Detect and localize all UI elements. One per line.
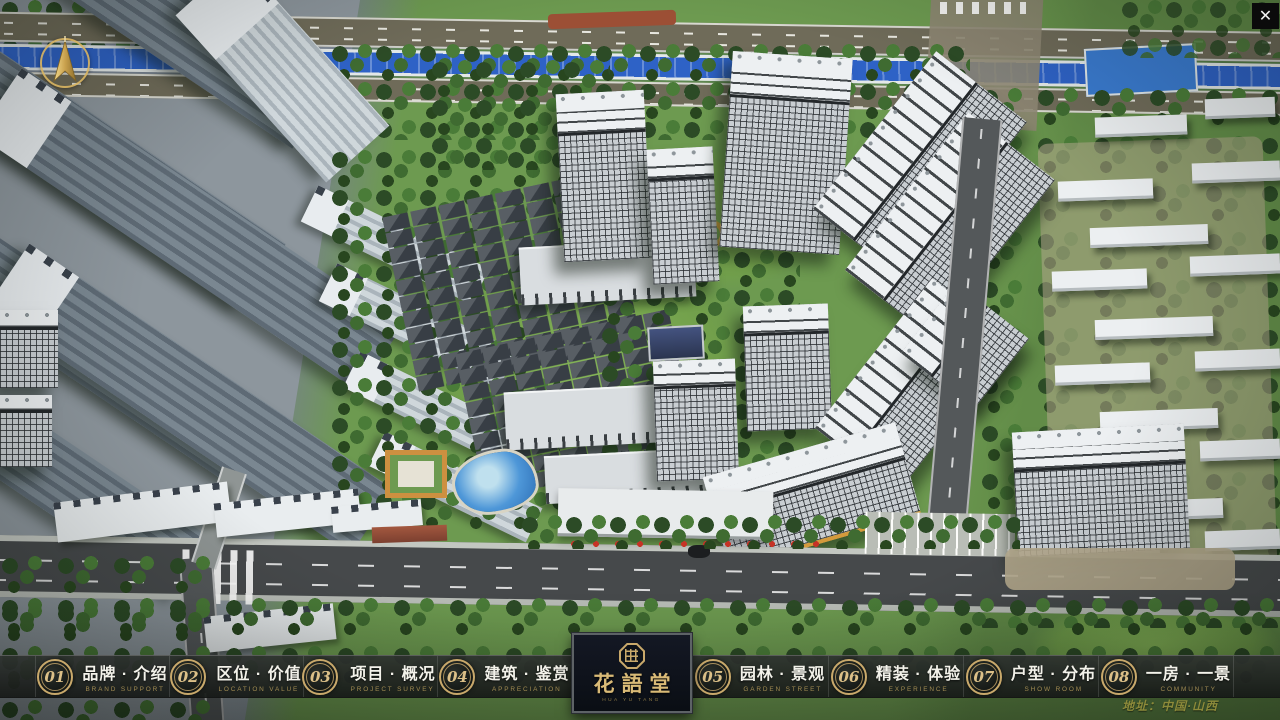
nav-number-badge: 05 (695, 659, 731, 695)
nav-number-badge: 06 (831, 659, 867, 695)
nav-label-zh: 园林 · 景观 (740, 660, 825, 684)
nav-number-badge: 04 (439, 659, 475, 695)
tower-building (647, 146, 720, 284)
tower-building (556, 90, 653, 262)
row-house (1095, 316, 1214, 340)
row-house (1200, 439, 1280, 462)
nav-label-en: GARDEN STREET (743, 686, 822, 692)
aerial-map[interactable] (0, 0, 1280, 720)
nav-item-garden[interactable]: 05 园林 · 景观 GARDEN STREET (692, 656, 829, 697)
commercial-building (1012, 424, 1190, 558)
row-house (1192, 160, 1280, 183)
tree-cluster (330, 44, 970, 140)
compass-icon (36, 34, 94, 92)
tower-building (743, 304, 832, 432)
nav-label-zh: 区位 · 价值 (216, 660, 301, 684)
logo[interactable]: 花語堂 HUA YU TANG (572, 633, 692, 713)
row-house (1205, 97, 1276, 119)
nav-item-architecture[interactable]: 04 建筑 · 鉴赏 APPRECIATION (438, 656, 572, 697)
building (504, 384, 677, 451)
bottom-navigation-bar: 01 品牌 · 介绍 BRAND SUPPORT 02 区位 · 价值 LOCA… (0, 655, 1280, 698)
crosswalk (940, 2, 1026, 14)
row-house (1090, 224, 1209, 248)
tower-building (653, 359, 739, 482)
nav-item-interior[interactable]: 06 精装 · 体验 EXPERIENCE (829, 656, 964, 697)
navbar-spacer (1234, 656, 1280, 697)
nav-label-en: LOCATION VALUE (219, 686, 300, 692)
nav-label-en: APPRECIATION (492, 686, 562, 692)
nav-label-en: COMMUNITY (1160, 686, 1216, 692)
nav-number-badge: 02 (170, 659, 206, 695)
navbar-spacer (0, 656, 36, 697)
building (0, 395, 52, 467)
sales-presentation-screen: ✕ 01 品牌 · 介绍 BRAND SUPPORT 02 区位 · 价值 LO… (0, 0, 1280, 720)
nav-label-zh: 精装 · 体验 (876, 660, 961, 684)
nav-item-room-view[interactable]: 08 一房 · 一景 COMMUNITY (1099, 656, 1234, 697)
nav-number-badge: 07 (966, 659, 1002, 695)
row-house (1058, 178, 1154, 201)
forecourt (1005, 548, 1235, 590)
nav-item-project[interactable]: 03 项目 · 概况 PROJECT SURVEY (304, 656, 438, 697)
nav-label-zh: 户型 · 分布 (1011, 660, 1096, 684)
nav-label-zh: 项目 · 概况 (350, 660, 435, 684)
clubhouse (647, 325, 705, 362)
row-house (1055, 362, 1151, 385)
logo-subtitle: HUA YU TANG (603, 698, 661, 703)
row-house (1195, 349, 1280, 372)
row-house (1095, 114, 1188, 137)
nav-label-en: EXPERIENCE (889, 686, 949, 692)
nav-label-en: SHOW ROOM (1024, 686, 1082, 692)
nav-number-badge: 01 (37, 659, 73, 695)
entrance-wall (372, 525, 448, 544)
nav-label-en: PROJECT SURVEY (351, 686, 435, 692)
row-house (1190, 253, 1280, 276)
close-button[interactable]: ✕ (1252, 3, 1279, 29)
nav-label-zh: 建筑 · 鉴赏 (484, 660, 569, 684)
seal-icon (619, 643, 645, 669)
logo-title: 花語堂 (587, 673, 678, 694)
nav-label-zh: 品牌 · 介绍 (82, 660, 167, 684)
nav-number-badge: 03 (302, 659, 338, 695)
nav-item-floorplan[interactable]: 07 户型 · 分布 SHOW ROOM (964, 656, 1099, 697)
nav-label-en: BRAND SUPPORT (85, 686, 164, 692)
nav-item-brand[interactable]: 01 品牌 · 介绍 BRAND SUPPORT (36, 656, 170, 697)
nav-number-badge: 08 (1101, 659, 1137, 695)
project-address: 地址：中国·山西 (1122, 697, 1218, 714)
nav-label-zh: 一房 · 一景 (1146, 660, 1231, 684)
building (0, 310, 58, 388)
tree-cluster (520, 515, 1020, 549)
kindergarten (385, 450, 447, 498)
row-house (1052, 268, 1148, 291)
nav-item-location[interactable]: 02 区位 · 价值 LOCATION VALUE (170, 656, 304, 697)
